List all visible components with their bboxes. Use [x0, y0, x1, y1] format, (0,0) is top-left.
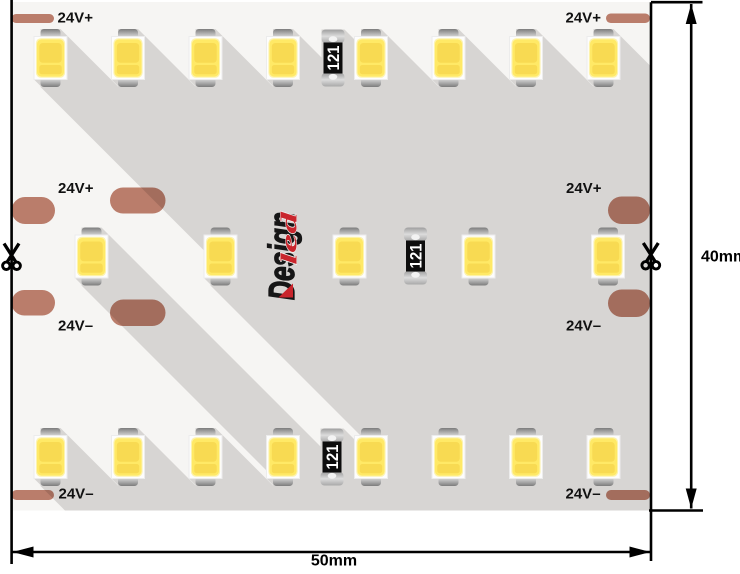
- svg-text:24V+: 24V+: [58, 180, 94, 197]
- svg-text:24V–: 24V–: [566, 486, 601, 503]
- svg-text:led: led: [277, 211, 302, 265]
- svg-text:24V–: 24V–: [566, 318, 601, 335]
- svg-text:24V+: 24V+: [566, 10, 602, 27]
- svg-text:40mm: 40mm: [701, 249, 740, 266]
- svg-text:50mm: 50mm: [311, 553, 357, 570]
- svg-text:24V–: 24V–: [59, 486, 94, 503]
- svg-text:24V+: 24V+: [566, 180, 602, 197]
- svg-text:24V–: 24V–: [58, 318, 93, 335]
- svg-text:24V+: 24V+: [58, 10, 94, 27]
